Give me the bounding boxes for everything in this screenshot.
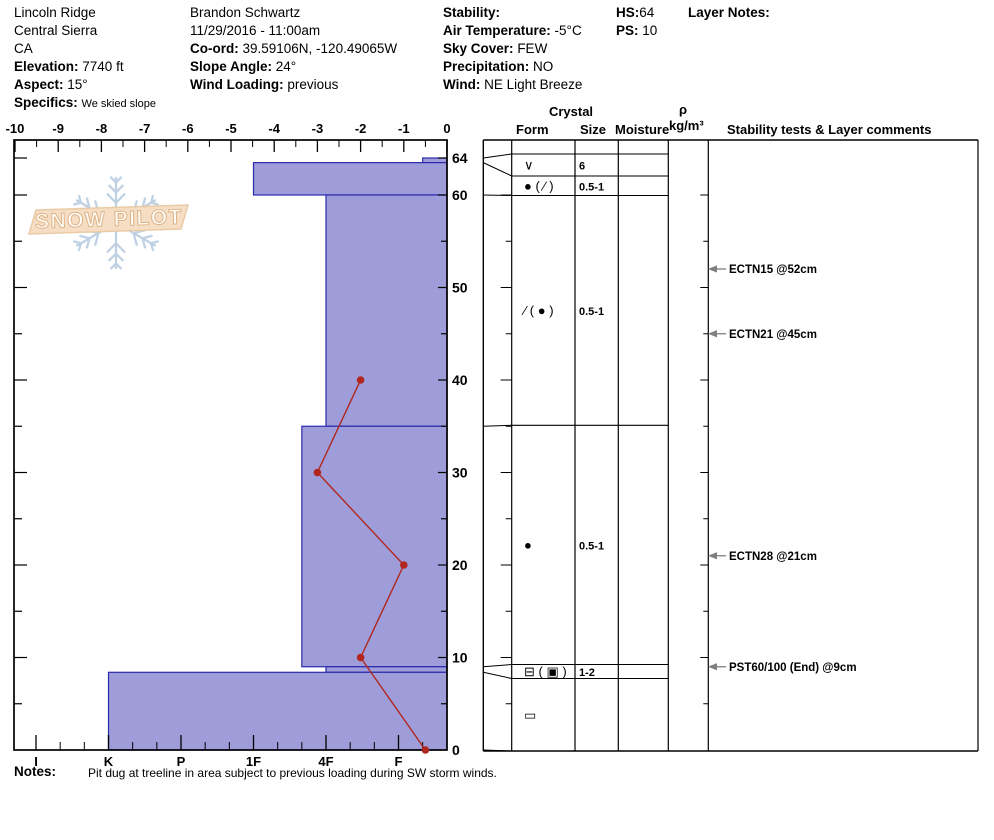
temp-axis-label: -5	[225, 121, 237, 136]
sky-cover-line: Sky Cover: FEW	[443, 40, 547, 58]
depth-label: 60	[452, 187, 468, 203]
air-temp-value: -5°C	[555, 23, 582, 38]
wind-loading-label: Wind Loading:	[190, 77, 284, 92]
snowpilot-logo-text: SNOW PILOT	[35, 206, 184, 234]
depth-label: 50	[452, 280, 468, 296]
slope-angle-value: 24°	[276, 59, 296, 74]
temp-axis-label: 0	[443, 121, 450, 136]
ps-line: PS: 10	[616, 22, 657, 40]
observer-name: Brandon Schwartz	[190, 4, 300, 22]
stability-arrow-head	[708, 330, 717, 337]
air-temp-line: Air Temperature: -5°C	[443, 22, 582, 40]
layer-bar-4F	[326, 667, 447, 673]
wind-loading-line: Wind Loading: previous	[190, 76, 338, 94]
stability-arrow-head	[708, 265, 717, 272]
crystal-form-cell: ∕ ( ● )	[521, 303, 554, 318]
crystal-form-cell: ⊟ ( ▣ )	[524, 664, 567, 679]
crystal-form-cell: ●	[524, 537, 532, 552]
temp-axis-label: -4	[268, 121, 280, 136]
temperature-point	[400, 561, 408, 569]
depth-label: 20	[452, 557, 468, 573]
temp-axis-label: -10	[6, 121, 25, 136]
comments-header: Stability tests & Layer comments	[727, 122, 931, 137]
notes-label: Notes:	[14, 763, 56, 781]
hs-line: HS:64	[616, 4, 654, 22]
specifics-line: Specifics: We skied slope	[14, 94, 156, 113]
specifics-value: We skied slope	[82, 98, 156, 110]
layer-notes-label: Layer Notes:	[688, 4, 770, 22]
hs-value: 64	[639, 5, 654, 20]
ps-value: 10	[642, 23, 657, 38]
stability-test-label: ECTN21 @45cm	[729, 329, 817, 341]
layer-leader-line	[483, 163, 511, 176]
site-name: Lincoln Ridge	[14, 4, 96, 22]
density-header: ρ	[679, 102, 687, 117]
crystal-header: Crystal	[541, 104, 601, 119]
site-region: Central Sierra	[14, 22, 97, 40]
elevation-value: 7740 ft	[82, 59, 123, 74]
temperature-point	[357, 654, 365, 662]
temperature-point	[422, 746, 430, 754]
layer-bar-K	[109, 672, 448, 750]
elevation-label: Elevation:	[14, 59, 79, 74]
layer-bar-4F+	[302, 426, 447, 667]
temp-axis-label: -9	[52, 121, 64, 136]
depth-label: 0	[452, 742, 460, 758]
temp-axis-label: -7	[139, 121, 151, 136]
crystal-form-cell: ∨	[524, 158, 534, 173]
hs-label: HS:	[616, 5, 639, 20]
coordinates-line: Co-ord: 39.59106N, -120.49065W	[190, 40, 397, 58]
site-state: CA	[14, 40, 33, 58]
precipitation-value: NO	[533, 59, 553, 74]
stability-test-label: ECTN15 @52cm	[729, 264, 817, 276]
crystal-form-cell: ▭	[524, 707, 536, 722]
ps-label: PS:	[616, 23, 639, 38]
density-units-header: kg/m³	[669, 118, 704, 133]
crystal-size-cell: 6	[579, 161, 585, 173]
layer-bar-F-	[423, 158, 447, 163]
coordinates-label: Co-ord:	[190, 41, 239, 56]
crystal-size-cell: 0.5-1	[579, 540, 604, 552]
layer-leader-line	[483, 665, 511, 667]
depth-label: 30	[452, 465, 468, 481]
layer-leader-line	[483, 154, 511, 158]
aspect-value: 15°	[67, 77, 87, 92]
notes-text: Pit dug at treeline in area subject to p…	[88, 766, 497, 780]
temp-axis-label: -1	[398, 121, 410, 136]
precipitation-line: Precipitation: NO	[443, 58, 553, 76]
stability-line: Stability:	[443, 4, 500, 22]
wind-value: NE Light Breeze	[484, 77, 582, 92]
coordinates-value: 39.59106N, -120.49065W	[243, 41, 398, 56]
layer-leader-line	[483, 672, 511, 678]
air-temp-label: Air Temperature:	[443, 23, 551, 38]
snowpilot-profile-page: SNOW PILOT-10-9-8-7-6-5-4-3-2-10IKP1F4FF…	[0, 0, 994, 840]
crystal-form-cell: ● ( ⁄ )	[524, 178, 554, 193]
form-header: Form	[516, 122, 549, 137]
wind-loading-value: previous	[287, 77, 338, 92]
wind-line: Wind: NE Light Breeze	[443, 76, 582, 94]
wind-label: Wind:	[443, 77, 480, 92]
depth-label: 10	[452, 650, 468, 666]
temp-axis-label: -2	[355, 121, 367, 136]
sky-cover-label: Sky Cover:	[443, 41, 514, 56]
layer-bar-1F	[254, 163, 448, 195]
stability-label: Stability:	[443, 5, 500, 20]
stability-arrow-head	[708, 552, 717, 559]
crystal-size-cell: 0.5-1	[579, 306, 604, 318]
depth-label: 40	[452, 372, 468, 388]
stability-arrow-head	[708, 663, 717, 670]
temperature-point	[357, 376, 365, 384]
sky-cover-value: FEW	[517, 41, 547, 56]
precipitation-label: Precipitation:	[443, 59, 529, 74]
aspect-line: Aspect: 15°	[14, 76, 88, 94]
slope-angle-label: Slope Angle:	[190, 59, 272, 74]
crystal-size-cell: 1-2	[579, 667, 595, 679]
stability-test-label: ECTN28 @21cm	[729, 551, 817, 563]
moisture-header: Moisture	[615, 122, 669, 137]
specifics-label: Specifics:	[14, 95, 78, 110]
size-header: Size	[580, 122, 606, 137]
crystal-size-cell: 0.5-1	[579, 181, 604, 193]
depth-label: 64	[452, 150, 468, 166]
stability-test-label: PST60/100 (End) @9cm	[729, 662, 857, 674]
temp-axis-label: -8	[96, 121, 108, 136]
layer-bar-4F	[326, 195, 447, 426]
layer-leader-line	[483, 195, 511, 196]
aspect-label: Aspect:	[14, 77, 64, 92]
temperature-point	[314, 469, 322, 477]
temp-axis-label: -3	[312, 121, 324, 136]
observation-datetime: 11/29/2016 - 11:00am	[190, 22, 320, 40]
elevation-line: Elevation: 7740 ft	[14, 58, 124, 76]
slope-angle-line: Slope Angle: 24°	[190, 58, 296, 76]
temp-axis-label: -6	[182, 121, 194, 136]
